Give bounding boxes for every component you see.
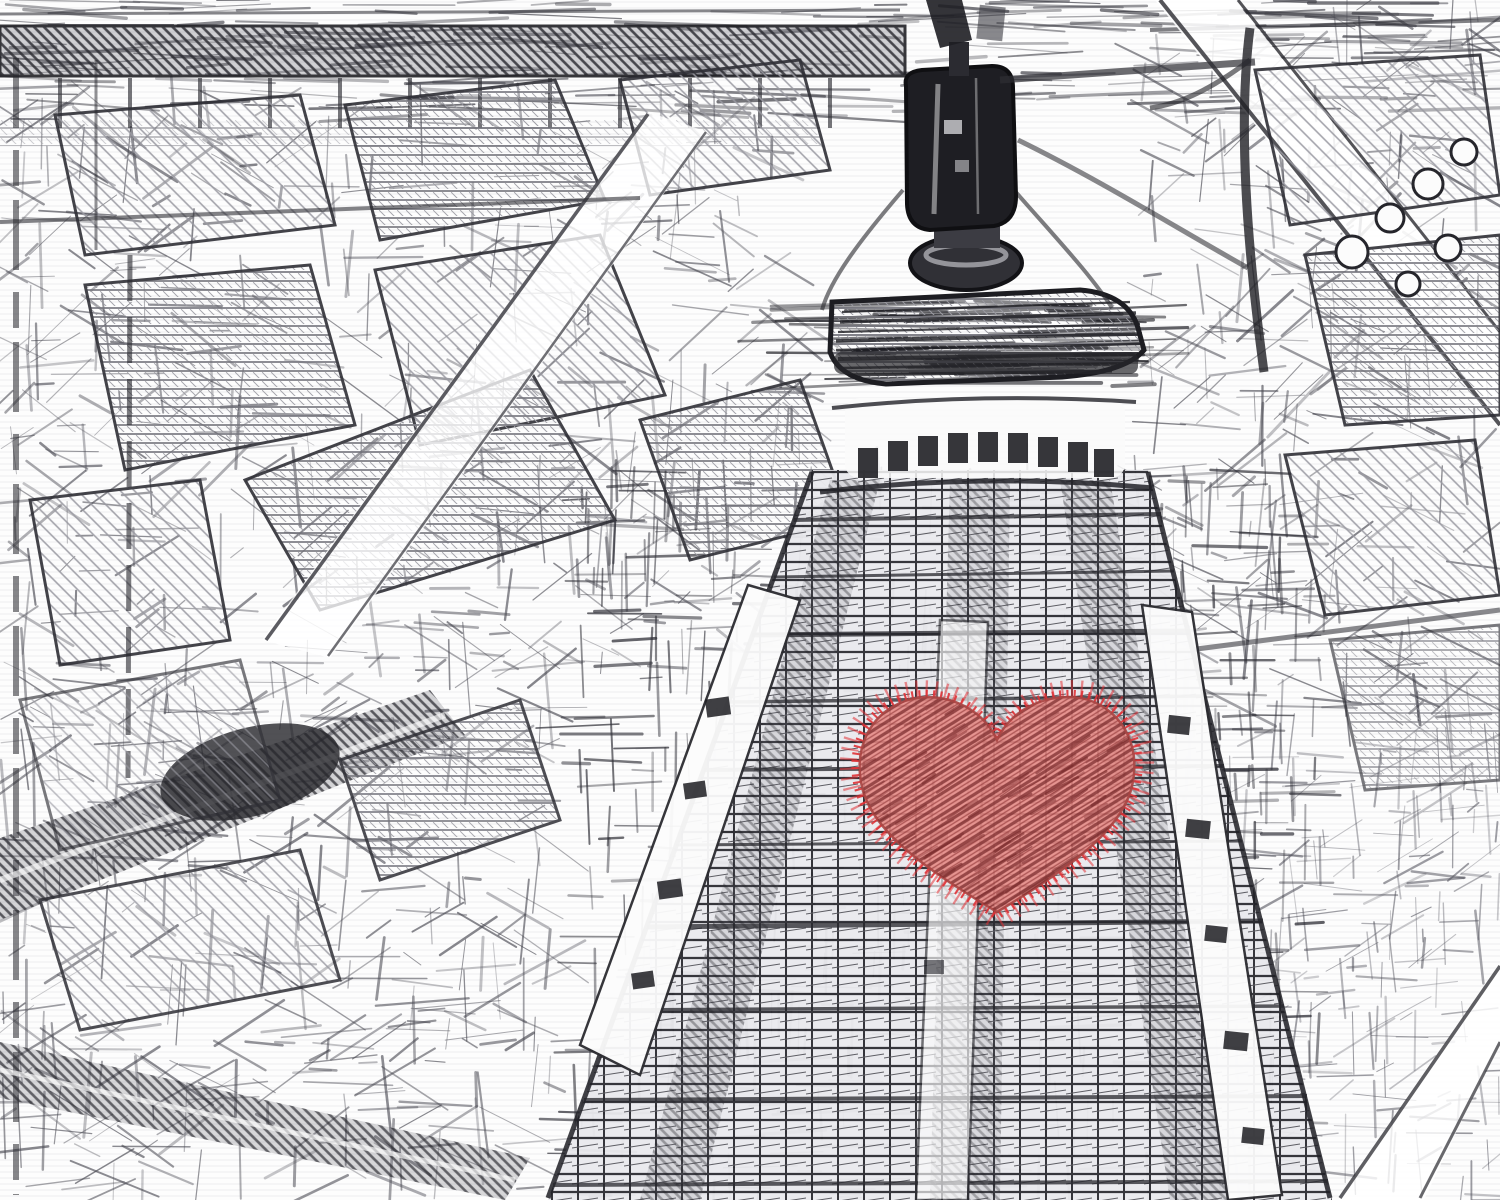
artwork: Black-and-white pencil-sketch aerial vie… bbox=[0, 0, 1500, 1200]
mast bbox=[949, 42, 969, 76]
summit-pod bbox=[906, 66, 1016, 230]
sketch-canvas: Black-and-white pencil-sketch aerial vie… bbox=[0, 0, 1500, 1200]
